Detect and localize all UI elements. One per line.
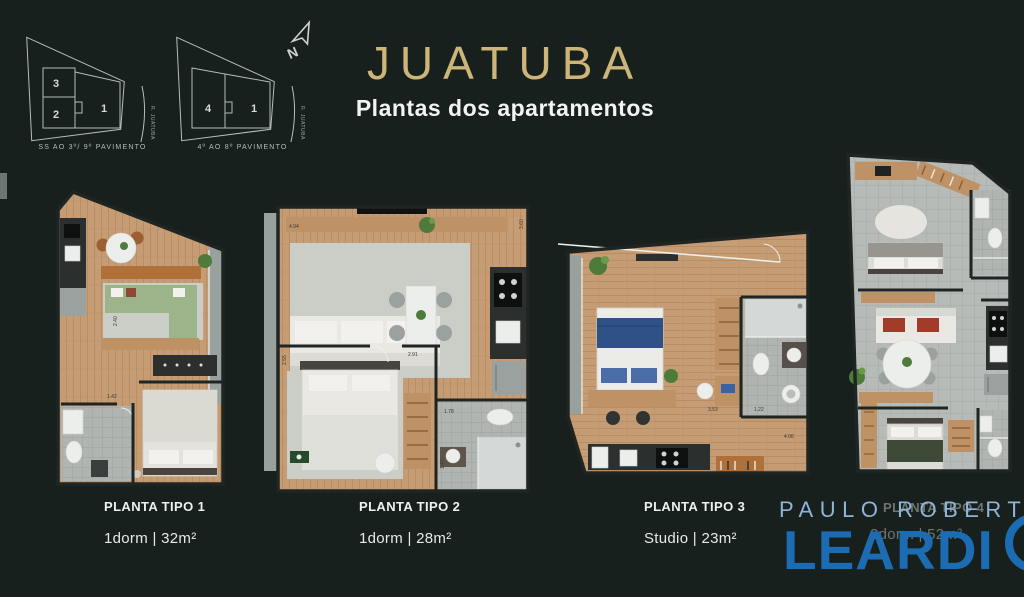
floorplan-3-image: 3.53 1.22 4.06 [558,226,824,490]
fp2-dim: 2.55 [282,355,288,365]
fp4-bathroom-2 [978,410,1010,471]
watermark-line2: LEARDI [783,518,1024,582]
fp1-kitchen [60,218,86,316]
unit-label: 1 [101,103,107,115]
fp2-balcony [264,213,277,471]
fp3-shelf [636,254,678,261]
page-subtitle: Plantas dos apartamentos [330,95,680,122]
floorplan-1-image: 2.40 1.42 [53,188,228,488]
fp1-dim: 2.40 [113,316,119,326]
street-label: R. JUATUBA [299,106,305,140]
fp2-tv-bench [290,451,309,463]
fp2-closet [404,393,431,469]
page-title: JUATUBA [340,36,670,90]
fp4-bathroom-1 [971,190,1010,275]
street-label: R. JUATUBA [149,106,155,140]
plan2-spec: 1dorm | 28m² [359,530,452,547]
site-plan-2-unit1-outline [225,74,270,128]
fp1-bed [133,390,217,478]
plan1-spec: 1dorm | 32m² [104,530,197,547]
plan2-name: PLANTA TIPO 2 [359,499,460,514]
floorplan-2-image: 4.94 3.60 2.55 2.91 1.78 1.47 [262,203,532,495]
unit-label: 3 [53,78,59,90]
site-plan-1-caption: SS AO 3º/ 9º PAVIMENTO [25,144,160,151]
site-plan-1-core [75,102,82,113]
site-plan-2-caption: 4º AO 8º PAVIMENTO [175,144,310,151]
fp4-bed-2 [887,418,943,470]
fp2-top-shelf [286,217,508,232]
fp4-kitchen [984,306,1010,395]
fp3-dim: 1.22 [754,407,764,413]
fp3-kitchen [588,444,710,470]
plan3-spec: Studio | 23m² [644,530,737,547]
site-plan-2-unit4-outline [192,68,225,128]
fp4-sofa [876,308,956,343]
fp1-console [101,338,199,350]
plan1-name: PLANTA TIPO 1 [104,499,205,514]
watermark-circle-mark [1000,505,1024,585]
fp2-tv [357,208,427,214]
site-plan-1: 3 2 1 R. JUATUBA [20,22,160,142]
fp1-bathroom [61,406,133,481]
fp1-credenza [101,266,201,279]
fp2-dim: 4.94 [289,224,299,230]
fp2-kitchen [490,267,528,395]
fp2-dim: 3.60 [519,219,525,229]
fp4-round-rug [875,205,927,239]
fp2-dim: 1.47 [440,459,446,469]
unit-label: 2 [53,109,59,121]
fp1-tv-cabinet [153,355,217,376]
street-curve [290,86,295,142]
fp3-bathroom [743,297,808,417]
fp4-wardrobe-right [948,420,974,452]
fp3-dim: 3.53 [708,407,718,413]
fp4-wardrobe-left [861,402,877,468]
unit-label: 1 [251,103,257,115]
edge-artifact [0,173,7,199]
plan3-name: PLANTA TIPO 3 [644,499,745,514]
fp1-plant [198,254,212,268]
site-plan-2: 4 1 R. JUATUBA [170,22,310,142]
fp3-dim: 4.06 [784,434,794,440]
fp1-sofa [103,283,203,340]
fp4-console [861,292,935,303]
poster-canvas: JUATUBA Plantas dos apartamentos N 3 2 1… [0,0,1024,597]
street-curve [140,86,145,142]
fp1-balcony [209,248,223,403]
fp3-wardrobe [715,298,743,370]
site-plan-1-unit1-outline [75,72,120,128]
fp4-desk [855,162,917,180]
fp4-sideboard [859,392,933,403]
fp4-bed-1 [868,243,943,274]
fp2-dim: 1.78 [444,409,454,415]
fp2-bed [300,361,400,473]
fp1-dim: 1.42 [107,394,117,400]
floorplan-4-image [843,150,1024,505]
unit-label: 4 [205,103,212,115]
fp3-balcony [569,256,581,414]
fp2-dim: 2.91 [408,352,418,358]
site-plan-2-core [225,102,232,113]
fp2-plant [419,217,435,233]
